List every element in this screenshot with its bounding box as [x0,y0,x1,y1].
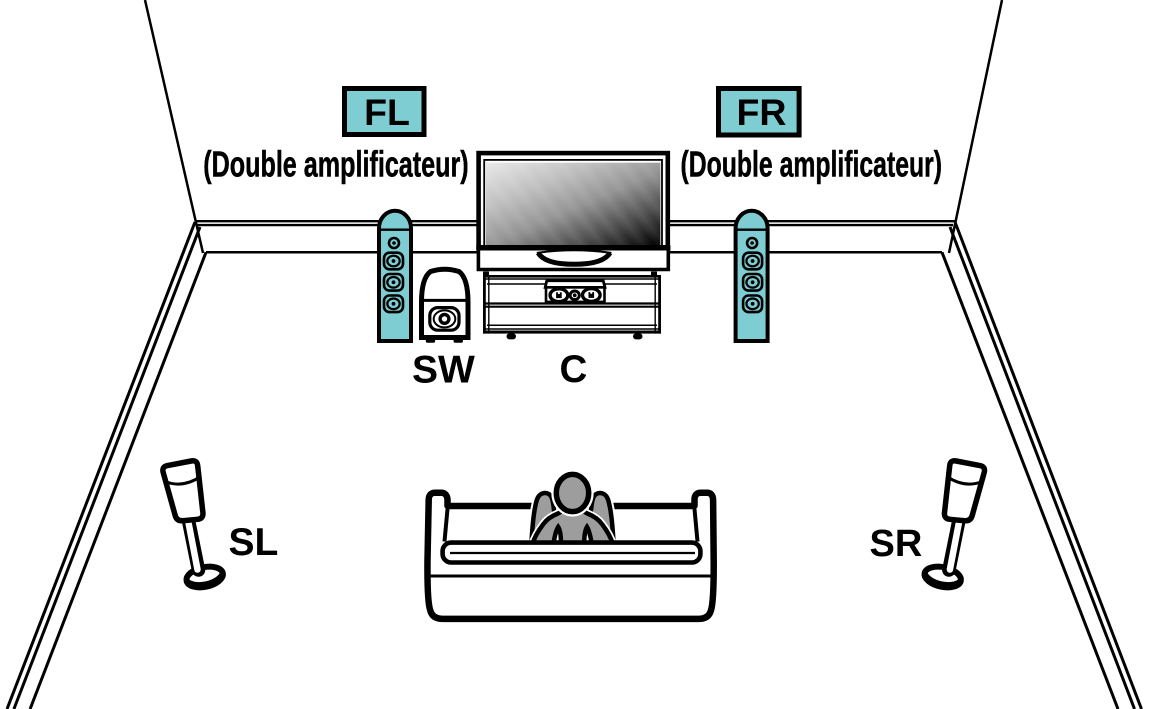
svg-text:SR: SR [870,523,923,565]
svg-text:FR: FR [737,91,787,133]
svg-text:(Double amplificateur): (Double amplificateur) [681,145,943,185]
svg-text:SW: SW [412,348,475,391]
svg-text:C: C [560,348,588,391]
svg-text:FL: FL [364,91,410,133]
svg-text:SL: SL [229,521,279,564]
svg-text:(Double amplificateur): (Double amplificateur) [203,145,469,185]
